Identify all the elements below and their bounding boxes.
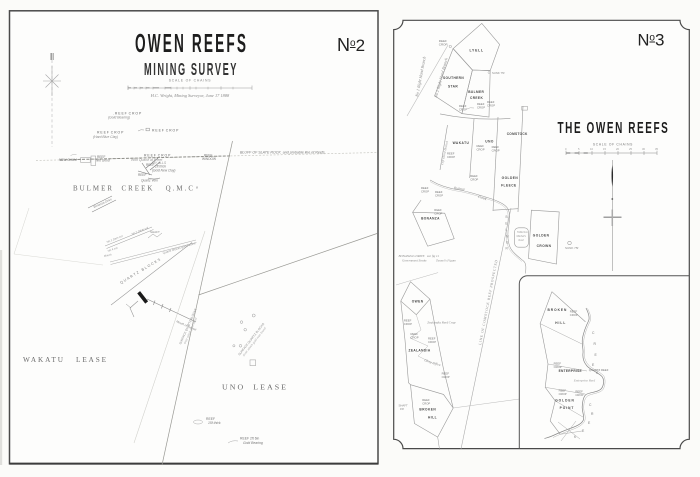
svg-text:CROP: CROP (442, 375, 450, 379)
svg-text:WAKATU LEASE: WAKATU LEASE (23, 355, 108, 364)
svg-text:CROP: CROP (477, 148, 485, 152)
svg-text:Gold Bearing: Gold Bearing (243, 441, 263, 445)
svg-text:GOLDEN: GOLDEN (502, 176, 519, 180)
svg-text:SUNK 75f: SUNK 75f (565, 246, 579, 250)
svg-text:BONANZA: BONANZA (421, 216, 440, 220)
svg-text:25: 25 (629, 147, 632, 151)
svg-text:SCALE OF CHAINS: SCALE OF CHAINS (593, 143, 633, 147)
svg-text:OWEN REEFS: OWEN REEFS (135, 29, 248, 58)
svg-text:(Hard Blue Clay): (Hard Blue Clay) (93, 135, 118, 139)
svg-text:ENTERPRISE: ENTERPRISE (559, 369, 582, 373)
svg-text:15f: 15f (400, 407, 404, 411)
svg-text:CROP: CROP (570, 313, 578, 317)
svg-text:CROP: CROP (575, 393, 583, 397)
svg-text:CROP: CROP (411, 336, 419, 340)
svg-text:ZEALANDIA: ZEALANDIA (409, 349, 431, 353)
svg-text:CROP: CROP (404, 322, 412, 326)
svg-text:STAR: STAR (448, 84, 458, 88)
svg-text:E: E (506, 241, 508, 245)
svg-text:CROP: CROP (470, 178, 478, 182)
svg-text:FLEECE: FLEECE (501, 184, 517, 188)
svg-text:CROP: CROP (492, 149, 500, 153)
svg-text:HILL: HILL (555, 321, 566, 325)
svg-text:SUNK 75f: SUNK 75f (492, 71, 505, 75)
svg-text:Tunnel's Figure: Tunnel's Figure (436, 259, 457, 263)
svg-text:CROP: CROP (421, 190, 429, 194)
svg-text:15f thick: 15f thick (208, 421, 221, 425)
svg-text:UNO LEASE: UNO LEASE (222, 383, 288, 392)
svg-text:CROP: CROP (477, 106, 485, 110)
svg-text:30: 30 (642, 147, 645, 151)
svg-text:COMSTOCK: COMSTOCK (507, 132, 528, 136)
svg-text:BROKEN: BROKEN (419, 408, 436, 412)
svg-text:BROKEN: BROKEN (548, 308, 568, 312)
svg-text:THE OWEN REEFS: THE OWEN REEFS (558, 120, 670, 138)
svg-text:BULMER CREEK Q.M.C: BULMER CREEK Q.M.C (73, 186, 195, 193)
svg-text:CROP: CROP (435, 194, 443, 198)
svg-text:WINDOW: WINDOW (202, 157, 216, 161)
svg-text:CROP: CROP (428, 340, 436, 344)
svg-text:Enterprise Reef: Enterprise Reef (573, 378, 596, 382)
svg-text:NEW CHUM: NEW CHUM (59, 158, 77, 162)
svg-text:CROP: CROP (439, 43, 448, 47)
svg-text:10: 10 (590, 147, 593, 151)
svg-text:Zealandia Reef Crop: Zealandia Reef Crop (427, 321, 456, 325)
svg-text:OWEN: OWEN (412, 299, 424, 303)
svg-text:SHAFT: SHAFT (150, 230, 160, 234)
svg-text:UNO: UNO (485, 139, 494, 143)
svg-text:15: 15 (603, 147, 606, 151)
svg-text:20: 20 (616, 147, 619, 151)
svg-text:MINING SURVEY: MINING SURVEY (144, 61, 238, 80)
svg-text:REEF: REEF (138, 173, 147, 177)
svg-text:CROP: CROP (434, 212, 442, 216)
svg-text:Not Good: Not Good (96, 159, 110, 163)
svg-text:REEF: REEF (146, 163, 155, 167)
svg-text:LYELL: LYELL (470, 49, 484, 53)
svg-text:CROWN: CROWN (537, 244, 552, 248)
svg-text:GOLDEN: GOLDEN (555, 398, 575, 402)
svg-text:CROP: CROP (447, 155, 455, 159)
svg-text:WAKATU: WAKATU (453, 141, 470, 145)
svg-text:QUARTZ REEF: QUARTZ REEF (589, 368, 609, 372)
svg-text:SOUTHERN: SOUTHERN (443, 76, 464, 80)
svg-text:CROP: CROP (422, 402, 430, 406)
svg-text:BLUFF OF SLATE ROCK and proba: BLUFF OF SLATE ROCK and probable line of… (240, 151, 325, 155)
svg-text:(Gold New Clay): (Gold New Clay) (152, 168, 175, 172)
svg-text:CROP: CROP (487, 104, 495, 108)
svg-text:R E E F C R O P: R E E F C R O P (152, 129, 179, 133)
svg-text:Government Stroke: Government Stroke (402, 259, 427, 263)
svg-text:REEF 2ft 6in: REEF 2ft 6in (240, 437, 259, 441)
svg-text:(Gold Bearing): (Gold Bearing) (108, 116, 130, 120)
svg-text:Quartz Vein: Quartz Vein (141, 179, 158, 183)
svg-text:SCALE OF CHAINS: SCALE OF CHAINS (169, 79, 212, 83)
svg-text:BONANZA's DRIVE see fig 11: BONANZA's DRIVE see fig 11 (399, 254, 440, 258)
svg-text:HILL: HILL (428, 416, 437, 420)
svg-text:Rush: Rush (519, 240, 525, 242)
svg-text:CROP: CROP (459, 108, 467, 112)
svg-text:M: M (506, 235, 509, 239)
svg-text:CROP: CROP (559, 392, 567, 396)
svg-text:Mitchell's: Mitchell's (517, 235, 527, 238)
svg-text:POINT: POINT (560, 406, 575, 410)
svg-text:TAKE No1: TAKE No1 (517, 231, 528, 234)
svg-text:BULMER: BULMER (468, 90, 484, 94)
svg-text:GOLDEN: GOLDEN (533, 234, 550, 238)
svg-text:B: B (506, 215, 508, 219)
svg-text:35: 35 (655, 147, 658, 151)
svg-text:o: o (196, 185, 198, 190)
svg-text:CREEK: CREEK (470, 96, 483, 100)
